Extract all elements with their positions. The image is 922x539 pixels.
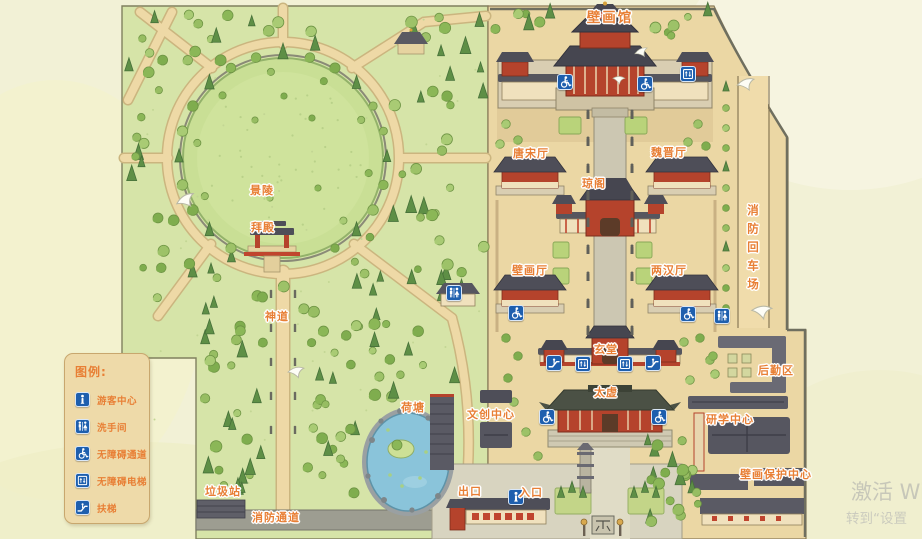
plaza-monument (592, 516, 614, 534)
label-cultural-creative-center: 文创中心 (467, 406, 515, 422)
legend-item-label: 游客中心 (97, 393, 137, 407)
label-lotus-pond: 荷塘 (401, 399, 425, 415)
activate-windows-watermark-line2: 转到“设置 (846, 507, 907, 527)
accessible-ramp-icon (508, 305, 524, 321)
legend-item: 无障碍通道 (75, 440, 149, 467)
label-mural-gallery: 壁画厅 (512, 262, 548, 278)
label-mural-conservation-center: 壁画保护中心 (740, 466, 812, 482)
accessible-ramp-icon (651, 409, 667, 425)
garbage-station-building (197, 500, 245, 518)
park-map: 壁画馆 唐宋厅 魏晋厅 琼阁 壁画厅 两汉厅 玄堂 太虚 景陵 拜殿 神道 荷塘… (0, 0, 922, 539)
accessible-elevator-icon (617, 356, 633, 372)
wei-jin-hall-building (646, 157, 718, 195)
accessible-ramp-icon (75, 446, 90, 461)
legend-item-label: 洗手间 (97, 420, 127, 434)
label-wei-jin-hall: 魏晋厅 (651, 144, 687, 160)
legend-item: 扶梯 (75, 494, 149, 521)
restroom-icon (75, 419, 90, 434)
label-study-center: 研学中心 (706, 411, 754, 427)
label-jing-mausoleum: 景陵 (250, 182, 274, 198)
label-logistics-area: 后勤区 (758, 362, 794, 378)
label-mural-museum: 壁画馆 (587, 6, 634, 26)
accessible-ramp-icon (557, 74, 573, 90)
legend-title: 图例: (75, 363, 149, 380)
legend-item: 游客中心 (75, 386, 149, 413)
label-entrance-gate: 入口 (519, 484, 543, 500)
restroom-icon (714, 308, 730, 324)
label-fire-passage: 消防通道 (252, 509, 300, 525)
label-two-han-hall: 两汉厅 (651, 262, 687, 278)
legend-item: 无障碍电梯 (75, 467, 149, 494)
label-fire-turnaround: 消防回车场 (745, 204, 761, 297)
label-taixu-hall: 太虚 (594, 384, 618, 400)
restroom-icon (446, 285, 462, 301)
label-xuan-hall: 玄堂 (594, 341, 618, 357)
escalator-icon (645, 355, 661, 371)
mural-gallery-building (494, 275, 566, 313)
legend-item: 洗手间 (75, 413, 149, 440)
accessible-elevator-icon (75, 473, 90, 488)
label-garbage-station: 垃圾站 (205, 483, 241, 499)
accessible-elevator-icon (680, 66, 696, 82)
label-tang-song-hall: 唐宋厅 (513, 145, 549, 161)
label-exit-gate: 出口 (458, 483, 482, 499)
legend-item-label: 无障碍通道 (97, 447, 147, 461)
label-sacred-way: 神道 (265, 308, 289, 324)
activate-windows-watermark-line1: 激活 Wi (851, 476, 922, 506)
label-worship-hall: 拜殿 (251, 219, 275, 235)
accessible-ramp-icon (637, 76, 653, 92)
accessible-elevator-icon (575, 356, 591, 372)
accessible-ramp-icon (680, 306, 696, 322)
tang-song-hall-building (494, 157, 566, 195)
legend-panel: 图例: 游客中心 洗手间 无障碍通道 无障碍电梯 扶梯 (64, 353, 150, 524)
legend-item-label: 无障碍电梯 (97, 474, 147, 488)
visitor-center-icon (75, 392, 90, 407)
label-qiong-pavilion: 琼阁 (582, 175, 606, 191)
escalator-icon (546, 355, 562, 371)
accessible-ramp-icon (539, 409, 555, 425)
legend-item-label: 扶梯 (97, 501, 117, 515)
escalator-icon (75, 500, 90, 515)
